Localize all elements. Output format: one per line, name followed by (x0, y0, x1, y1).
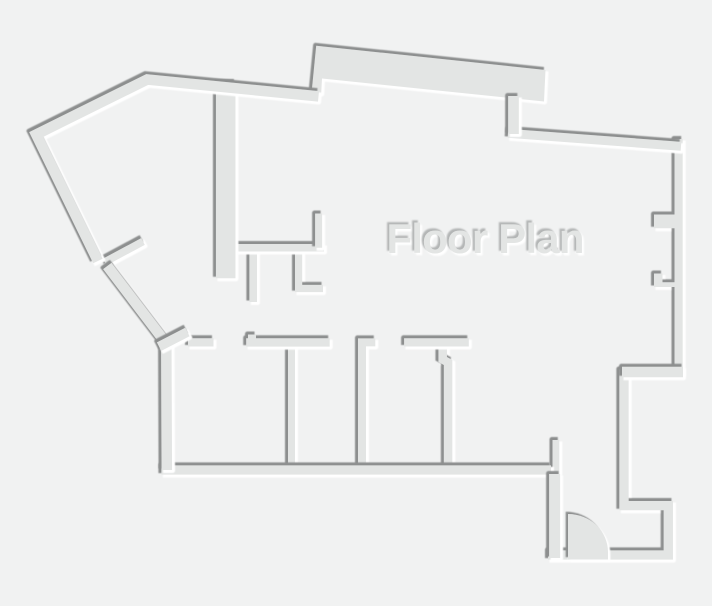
svg-text:Floor Plan: Floor Plan (387, 215, 585, 262)
